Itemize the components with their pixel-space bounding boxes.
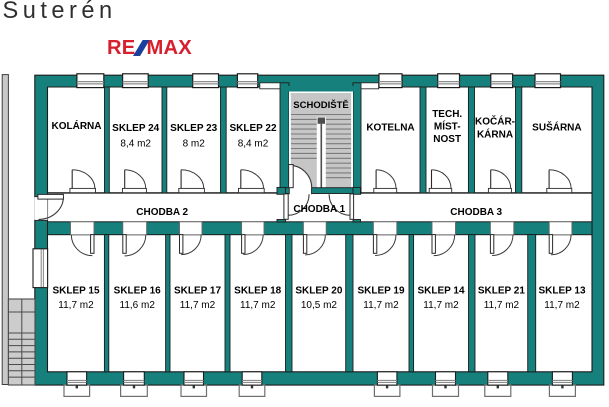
svg-text:TECH.: TECH. xyxy=(432,109,462,120)
svg-text:SKLEP 18: SKLEP 18 xyxy=(234,286,281,297)
svg-text:10,5 m2: 10,5 m2 xyxy=(301,300,338,311)
svg-text:SKLEP 19: SKLEP 19 xyxy=(357,286,404,297)
svg-text:8,4 m2: 8,4 m2 xyxy=(120,138,151,149)
svg-text:SCHODIŠTĚ: SCHODIŠTĚ xyxy=(293,99,348,111)
svg-text:SKLEP 24: SKLEP 24 xyxy=(112,123,159,134)
svg-text:SKLEP 21: SKLEP 21 xyxy=(478,286,525,297)
svg-text:SKLEP 14: SKLEP 14 xyxy=(417,286,464,297)
svg-text:11,7 m2: 11,7 m2 xyxy=(240,300,276,311)
svg-text:11,7 m2: 11,7 m2 xyxy=(363,300,399,311)
svg-text:11,7 m2: 11,7 m2 xyxy=(544,300,580,311)
svg-text:SUŠÁRNA: SUŠÁRNA xyxy=(532,121,581,134)
svg-text:8 m2: 8 m2 xyxy=(183,138,206,149)
svg-text:KOTELNA: KOTELNA xyxy=(366,123,414,134)
svg-text:SKLEP 16: SKLEP 16 xyxy=(114,286,161,297)
svg-text:SKLEP 23: SKLEP 23 xyxy=(170,123,217,134)
svg-text:SKLEP 15: SKLEP 15 xyxy=(52,286,99,297)
svg-text:SKLEP 17: SKLEP 17 xyxy=(174,286,221,297)
svg-text:SKLEP 20: SKLEP 20 xyxy=(295,286,342,297)
svg-text:8,4 m2: 8,4 m2 xyxy=(238,138,269,149)
svg-text:KOLÁRNA: KOLÁRNA xyxy=(52,119,102,132)
svg-text:CHODBA 2: CHODBA 2 xyxy=(136,207,188,218)
svg-text:NOST: NOST xyxy=(433,134,461,145)
svg-text:CHODBA 1: CHODBA 1 xyxy=(293,204,345,215)
svg-text:SKLEP 13: SKLEP 13 xyxy=(538,286,585,297)
svg-text:MÍST-: MÍST- xyxy=(434,119,461,132)
svg-text:CHODBA 3: CHODBA 3 xyxy=(450,207,502,218)
svg-text:SKLEP 22: SKLEP 22 xyxy=(229,123,276,134)
svg-text:KÁRNA: KÁRNA xyxy=(477,127,513,140)
svg-text:KOČÁR-: KOČÁR- xyxy=(475,114,515,127)
svg-text:11,7 m2: 11,7 m2 xyxy=(484,300,520,311)
svg-text:11,7 m2: 11,7 m2 xyxy=(58,300,94,311)
svg-text:11,6 m2: 11,6 m2 xyxy=(120,300,156,311)
svg-text:11,7 m2: 11,7 m2 xyxy=(423,300,459,311)
svg-text:11,7 m2: 11,7 m2 xyxy=(180,300,216,311)
